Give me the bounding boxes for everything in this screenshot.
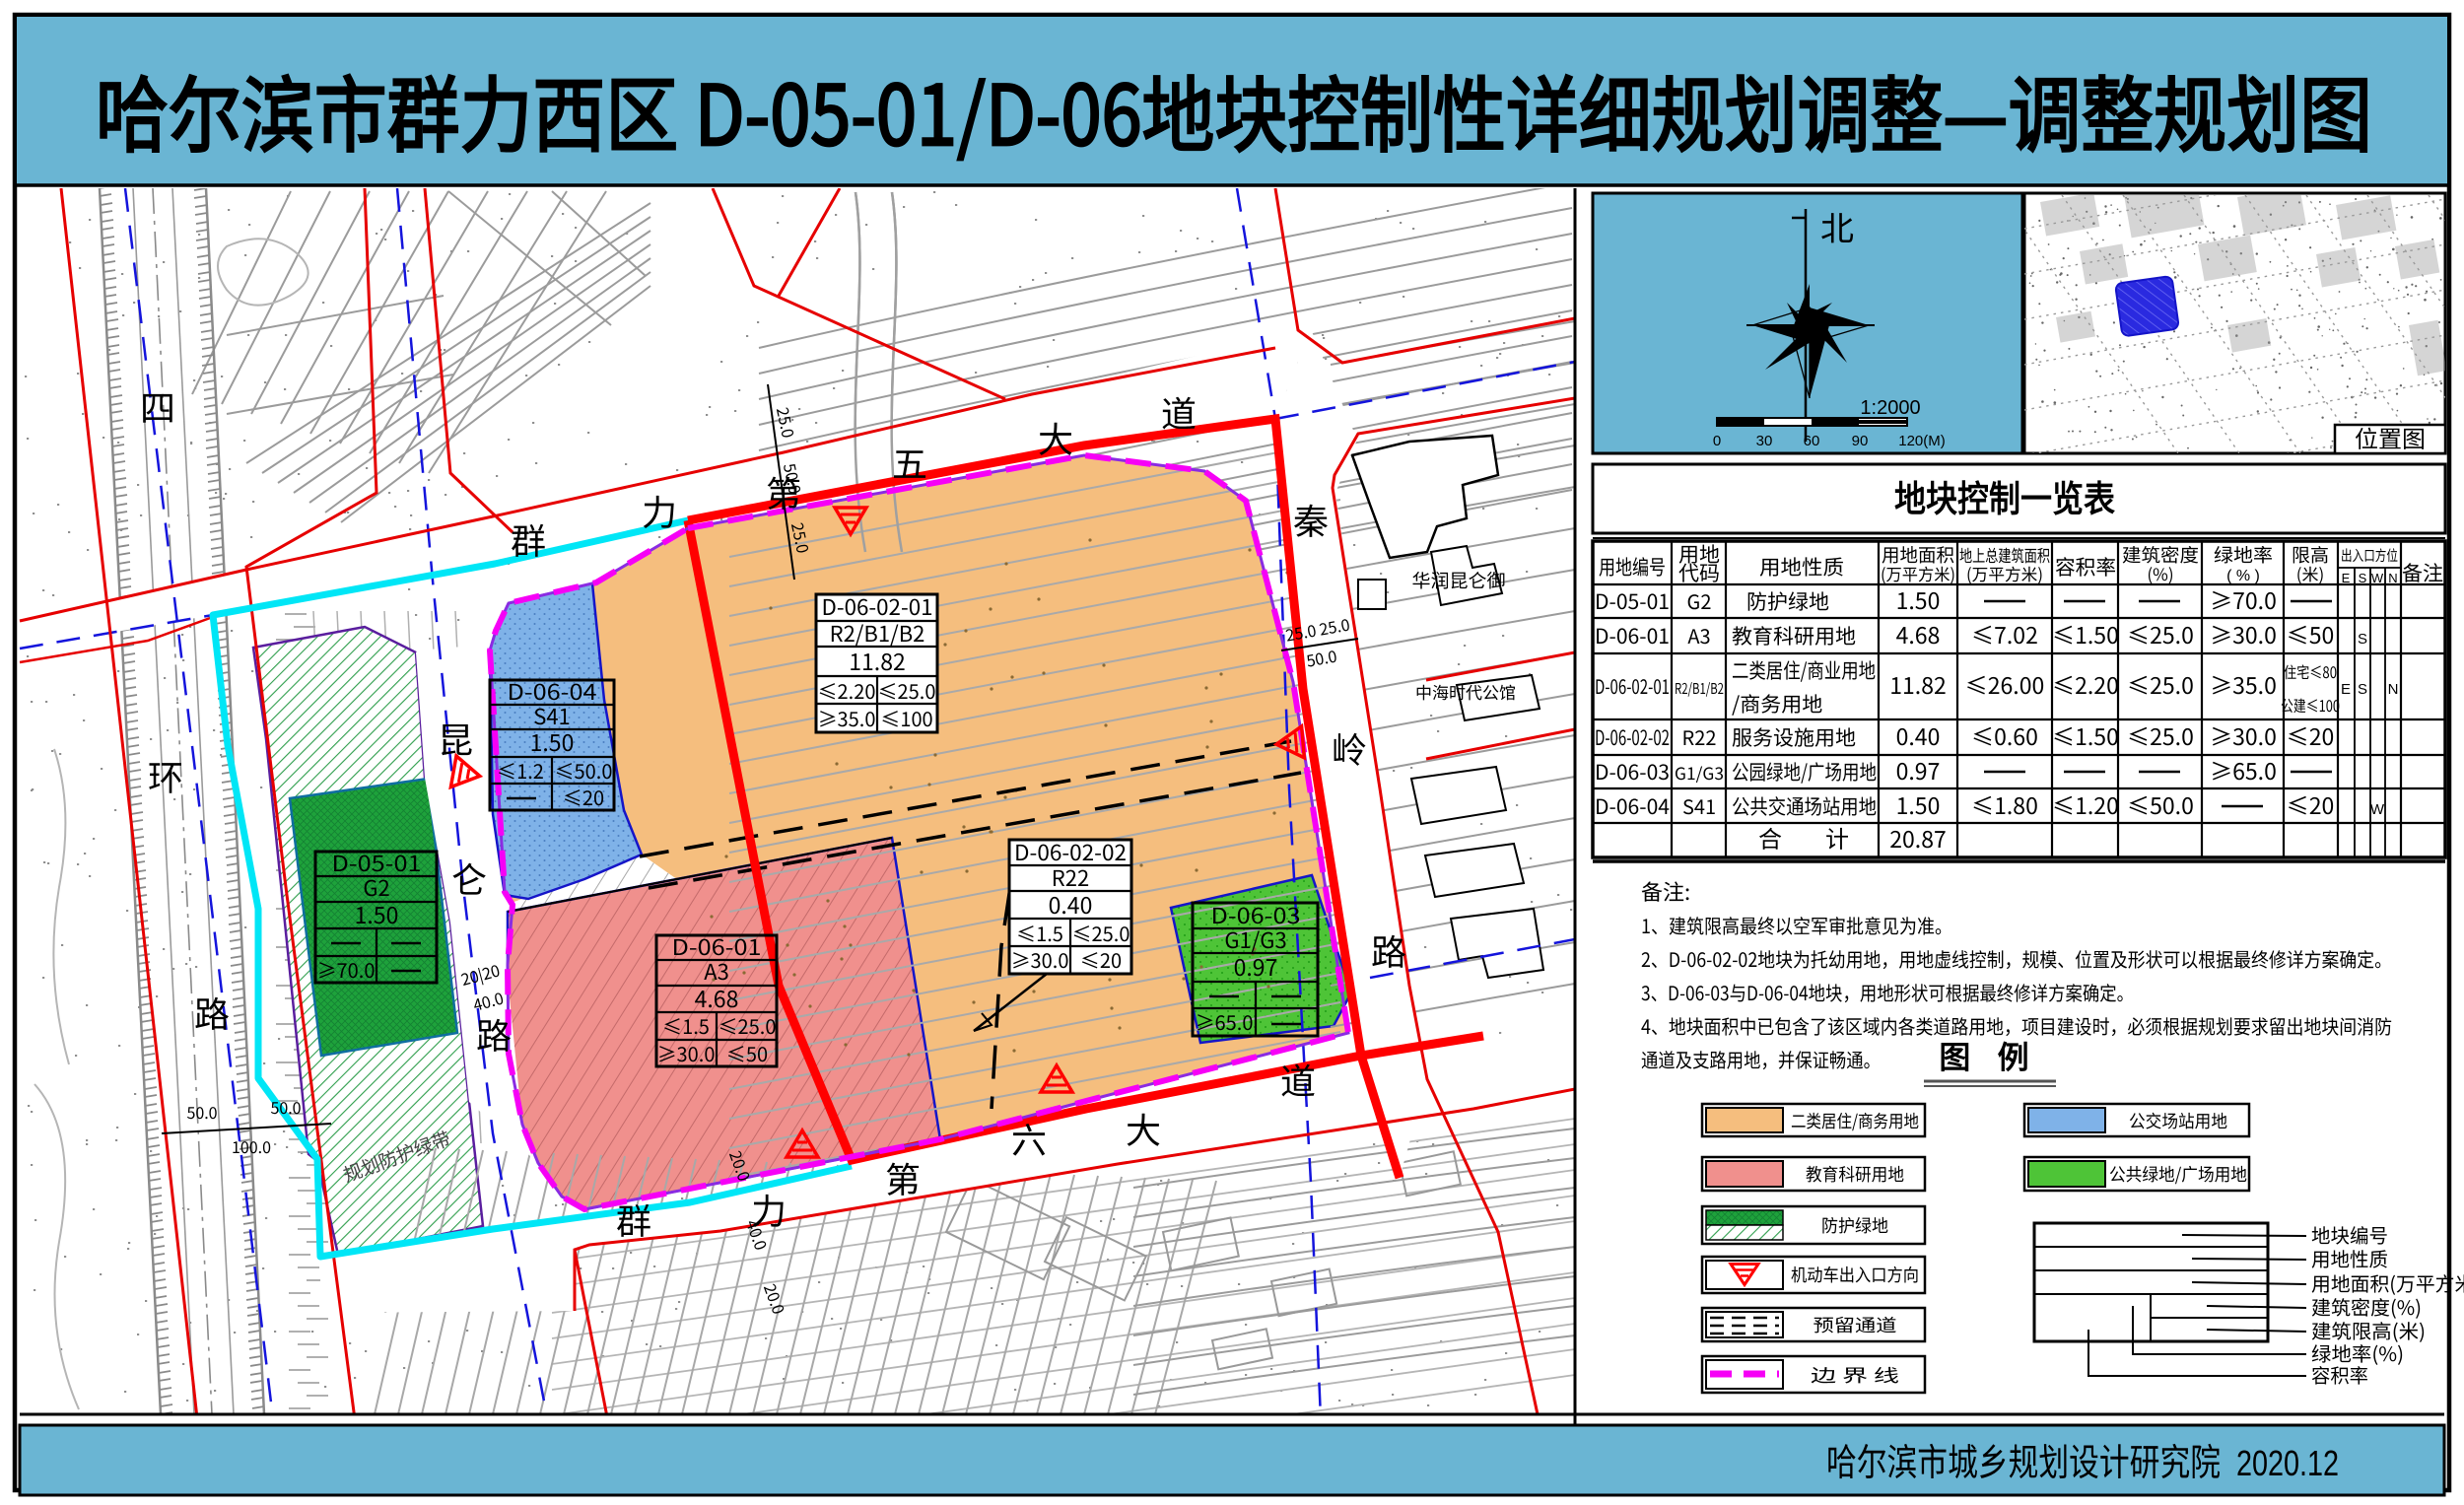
svg-text:50.0: 50.0 — [186, 1100, 217, 1124]
svg-text:≥35.0: ≥35.0 — [2210, 667, 2277, 701]
svg-text:D-06-01: D-06-01 — [1595, 621, 1670, 650]
svg-text:边 界 线: 边 界 线 — [1811, 1362, 1899, 1388]
svg-text:≤25.0: ≤25.0 — [1072, 919, 1130, 947]
svg-text:路: 路 — [194, 987, 230, 1038]
svg-text:≤1.80: ≤1.80 — [1971, 787, 2038, 821]
svg-text:2、D-06-02-02地块为托幼用地，用地虚线控制，规模、: 2、D-06-02-02地块为托幼用地，用地虚线控制，规模、位置及形状可以根据最… — [1641, 944, 2392, 973]
svg-text:≥30.0: ≥30.0 — [1011, 945, 1069, 974]
svg-text:预留通道: 预留通道 — [1814, 1312, 1897, 1337]
svg-text:群: 群 — [616, 1194, 651, 1245]
svg-text:G2: G2 — [1687, 586, 1712, 615]
svg-text:≤50: ≤50 — [726, 1039, 768, 1067]
svg-text:二类居住/商务用地: 二类居住/商务用地 — [1791, 1108, 1919, 1133]
svg-text:1.50: 1.50 — [1896, 582, 1941, 616]
svg-text:岭: 岭 — [1332, 722, 1367, 774]
svg-text:代码: 代码 — [1678, 558, 1720, 587]
svg-text:仑: 仑 — [451, 853, 487, 904]
svg-text:公建≤100: 公建≤100 — [2281, 693, 2340, 717]
svg-text:图 例: 图 例 — [1939, 1033, 2038, 1078]
svg-text:六: 六 — [1011, 1113, 1047, 1164]
svg-text:D-06-02-02: D-06-02-02 — [1595, 722, 1670, 752]
svg-text:A3: A3 — [1687, 621, 1710, 650]
svg-text:4.68: 4.68 — [1896, 617, 1941, 650]
svg-text:0.97: 0.97 — [1896, 753, 1941, 787]
svg-text:≤26.00: ≤26.00 — [1965, 667, 2044, 701]
svg-text:秦: 秦 — [1293, 494, 1329, 545]
svg-text:道: 道 — [1161, 386, 1197, 438]
svg-text:1、建筑限高最终以空军审批意见为准。: 1、建筑限高最终以空军审批意见为准。 — [1641, 911, 1952, 939]
svg-text:N: N — [2388, 681, 2399, 698]
svg-text:0.40: 0.40 — [1896, 718, 1941, 752]
svg-text:S: S — [2358, 631, 2367, 648]
svg-text:N: N — [2388, 571, 2397, 585]
svg-text:大: 大 — [1038, 412, 1073, 463]
svg-text:路: 路 — [476, 1008, 512, 1060]
svg-text:(%): (%) — [2147, 561, 2173, 585]
svg-text:D-06-02-01: D-06-02-01 — [1595, 671, 1670, 700]
svg-text:昆: 昆 — [438, 713, 473, 764]
svg-text:用地性质: 用地性质 — [1759, 552, 1844, 581]
svg-text:D-05-01: D-05-01 — [1595, 586, 1670, 616]
svg-text:≤20: ≤20 — [2287, 718, 2335, 752]
svg-text:中海时代公馆: 中海时代公馆 — [1415, 679, 1516, 704]
svg-text:备注:: 备注: — [1641, 875, 1690, 907]
svg-text:≤1.5: ≤1.5 — [1016, 919, 1063, 947]
svg-text:≤20: ≤20 — [1080, 945, 1122, 974]
svg-text:/商务用地: /商务用地 — [1732, 689, 1822, 718]
svg-text:2020.12: 2020.12 — [2236, 1443, 2339, 1483]
svg-text:≤50.0: ≤50.0 — [2127, 787, 2194, 821]
svg-text:3、D-06-03与D-06-04地块，用地形状可根据最终修: 3、D-06-03与D-06-04地块，用地形状可根据最终修详方案确定。 — [1641, 978, 2134, 1006]
svg-text:位置图: 位置图 — [2355, 420, 2426, 454]
svg-text:≥30.0: ≥30.0 — [657, 1039, 716, 1067]
svg-text:用地编号: 用地编号 — [1599, 552, 1666, 581]
svg-text:≥30.0: ≥30.0 — [2210, 718, 2277, 752]
svg-text:四: 四 — [140, 380, 175, 432]
svg-text:S41: S41 — [1682, 791, 1716, 820]
svg-text:R2/B1/B2: R2/B1/B2 — [1675, 678, 1724, 699]
svg-text:≤25.0: ≤25.0 — [2127, 617, 2194, 650]
svg-text:第: 第 — [885, 1152, 921, 1203]
svg-text:1:2000: 1:2000 — [1860, 397, 1920, 419]
svg-text:11.82: 11.82 — [1889, 667, 1946, 701]
svg-text:20.87: 20.87 — [1889, 821, 1946, 855]
svg-text:≥70.0: ≥70.0 — [2210, 582, 2277, 616]
svg-text:≤1.2: ≤1.2 — [497, 756, 544, 785]
svg-text:二类居住/商业用地: 二类居住/商业用地 — [1732, 655, 1876, 685]
svg-text:合: 合 — [1758, 820, 1782, 855]
svg-text:≤25.0: ≤25.0 — [719, 1011, 777, 1040]
svg-text:1.50: 1.50 — [1896, 787, 1941, 821]
svg-text:G1/G3: G1/G3 — [1675, 760, 1724, 785]
svg-text:≤1.20: ≤1.20 — [2052, 787, 2119, 821]
svg-text:路: 路 — [1371, 924, 1406, 976]
svg-text:防护绿地: 防护绿地 — [1821, 1212, 1888, 1238]
svg-text:≤2.20: ≤2.20 — [2052, 667, 2119, 701]
svg-text:≤1.50: ≤1.50 — [2052, 617, 2119, 650]
svg-text:(米): (米) — [2296, 561, 2325, 585]
svg-text:≤2.20: ≤2.20 — [818, 676, 876, 705]
svg-text:机动车出入口方向: 机动车出入口方向 — [1791, 1262, 1919, 1287]
svg-text:防护绿地: 防护绿地 — [1746, 586, 1829, 616]
svg-text:教育科研用地: 教育科研用地 — [1732, 621, 1856, 650]
svg-text:计: 计 — [1825, 820, 1849, 855]
svg-text:通道及支路用地，并保证畅通。: 通道及支路用地，并保证畅通。 — [1641, 1045, 1881, 1073]
svg-text:S: S — [2359, 571, 2367, 585]
svg-text:≤20: ≤20 — [2287, 787, 2335, 821]
svg-text:W: W — [2370, 801, 2385, 818]
svg-text:≤1.5: ≤1.5 — [662, 1011, 710, 1040]
svg-text:W: W — [2371, 571, 2384, 585]
svg-text:≥35.0: ≥35.0 — [818, 704, 876, 732]
svg-text:公园绿地/广场用地: 公园绿地/广场用地 — [1732, 757, 1877, 787]
svg-text:R22: R22 — [1682, 722, 1717, 751]
svg-text:≤25.0: ≤25.0 — [2127, 667, 2194, 701]
svg-text:E: E — [2341, 681, 2351, 698]
svg-text:S: S — [2358, 681, 2367, 698]
svg-text:60: 60 — [1804, 433, 1820, 449]
svg-text:≥70.0: ≥70.0 — [317, 955, 376, 984]
svg-text:北: 北 — [1820, 202, 1854, 250]
svg-text:100.0: 100.0 — [232, 1134, 271, 1158]
svg-text:住宅≤80: 住宅≤80 — [2284, 659, 2337, 683]
svg-text:0: 0 — [1713, 433, 1721, 449]
svg-text:≤0.60: ≤0.60 — [1971, 718, 2038, 752]
svg-text:≤7.02: ≤7.02 — [1971, 617, 2038, 650]
svg-text:≥30.0: ≥30.0 — [2210, 617, 2277, 650]
svg-text:道: 道 — [1280, 1054, 1316, 1105]
svg-text:五: 五 — [892, 437, 927, 488]
svg-text:容积率: 容积率 — [2055, 552, 2116, 581]
svg-text:≥65.0: ≥65.0 — [2210, 753, 2277, 787]
svg-text:30: 30 — [1756, 433, 1773, 449]
svg-text:≤25.0: ≤25.0 — [878, 676, 936, 705]
svg-text:≤50.0: ≤50.0 — [555, 756, 613, 785]
svg-text:≤100: ≤100 — [880, 704, 932, 732]
svg-text:容积率: 容积率 — [2311, 1360, 2368, 1389]
svg-text:教育科研用地: 教育科研用地 — [1806, 1161, 1904, 1187]
svg-text:哈尔滨市群力西区 D-05-01/D-06地块控制性详细规划: 哈尔滨市群力西区 D-05-01/D-06地块控制性详细规划调整—调整规划图 — [96, 50, 2372, 170]
svg-text:11.82: 11.82 — [849, 644, 905, 677]
svg-text:≤50: ≤50 — [2287, 617, 2335, 650]
svg-text:公共绿地/广场用地: 公共绿地/广场用地 — [2109, 1161, 2247, 1187]
svg-text:≥65.0: ≥65.0 — [1196, 1007, 1254, 1036]
svg-text:D-06-04: D-06-04 — [1595, 791, 1670, 821]
svg-text:D-06-03: D-06-03 — [1595, 757, 1670, 787]
svg-text:出入口方位: 出入口方位 — [2341, 545, 2398, 566]
svg-text:公交场站用地: 公交场站用地 — [2129, 1108, 2227, 1133]
svg-text:华润昆仑御: 华润昆仑御 — [1411, 567, 1505, 593]
svg-text:50.0: 50.0 — [270, 1095, 301, 1119]
svg-text:(万平方米): (万平方米) — [1966, 561, 2043, 585]
svg-text:公共交通场站用地: 公共交通场站用地 — [1732, 791, 1877, 821]
svg-text:群: 群 — [511, 513, 546, 565]
svg-text:≤25.0: ≤25.0 — [2127, 718, 2194, 752]
svg-text:E: E — [2342, 571, 2351, 585]
svg-text:备注: 备注 — [2402, 558, 2443, 587]
svg-text:≤1.50: ≤1.50 — [2052, 718, 2119, 752]
svg-text:绿地率: 绿地率 — [2214, 541, 2273, 568]
svg-text:≤20: ≤20 — [563, 783, 604, 811]
svg-text:120(M): 120(M) — [1898, 433, 1946, 449]
svg-text:地块控制一览表: 地块控制一览表 — [1894, 469, 2115, 522]
svg-text:力: 力 — [642, 485, 677, 536]
svg-text:大: 大 — [1126, 1103, 1161, 1154]
svg-text:90: 90 — [1852, 433, 1869, 449]
svg-text:服务设施用地: 服务设施用地 — [1732, 722, 1856, 752]
svg-text:环: 环 — [148, 750, 183, 801]
svg-text:哈尔滨市城乡规划设计研究院: 哈尔滨市城乡规划设计研究院 — [1826, 1432, 2221, 1486]
